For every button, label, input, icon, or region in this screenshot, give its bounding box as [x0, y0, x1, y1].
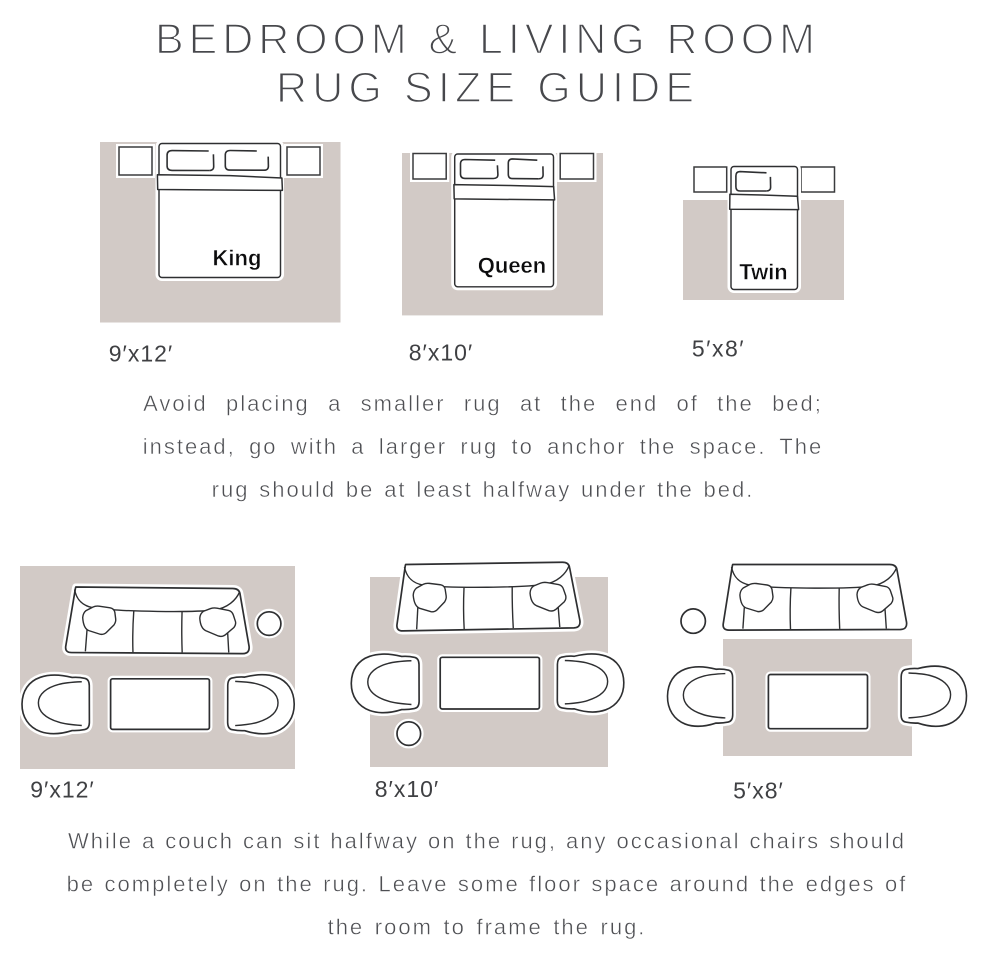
svg-text:8′x10′: 8′x10′ [375, 776, 440, 802]
svg-text:the room to frame the rug.: the room to frame the rug. [328, 915, 647, 940]
svg-text:5′x8′: 5′x8′ [733, 778, 784, 804]
svg-text:BEDROOM & LIVING ROOM: BEDROOM & LIVING ROOM [155, 15, 815, 63]
svg-text:instead, go with a larger rug: instead, go with a larger rug to anchor … [143, 434, 824, 459]
svg-text:King: King [213, 246, 262, 271]
svg-text:While a couch can sit halfway: While a couch can sit halfway on the rug… [68, 829, 906, 854]
svg-text:rug should be at least halfway: rug should be at least halfway under the… [212, 477, 755, 502]
svg-text:Queen: Queen [478, 253, 546, 278]
svg-text:8′x10′: 8′x10′ [409, 339, 474, 365]
svg-text:RUG SIZE GUIDE: RUG SIZE GUIDE [276, 64, 694, 112]
svg-text:be completely on the rug. Leav: be completely on the rug. Leave some flo… [67, 872, 908, 897]
svg-text:Twin: Twin [739, 260, 787, 285]
svg-text:5′x8′: 5′x8′ [692, 335, 745, 361]
svg-text:Avoid placing a smaller rug at: Avoid placing a smaller rug at the end o… [143, 391, 823, 416]
svg-text:9′x12′: 9′x12′ [109, 340, 174, 366]
svg-text:9′x12′: 9′x12′ [30, 777, 95, 803]
